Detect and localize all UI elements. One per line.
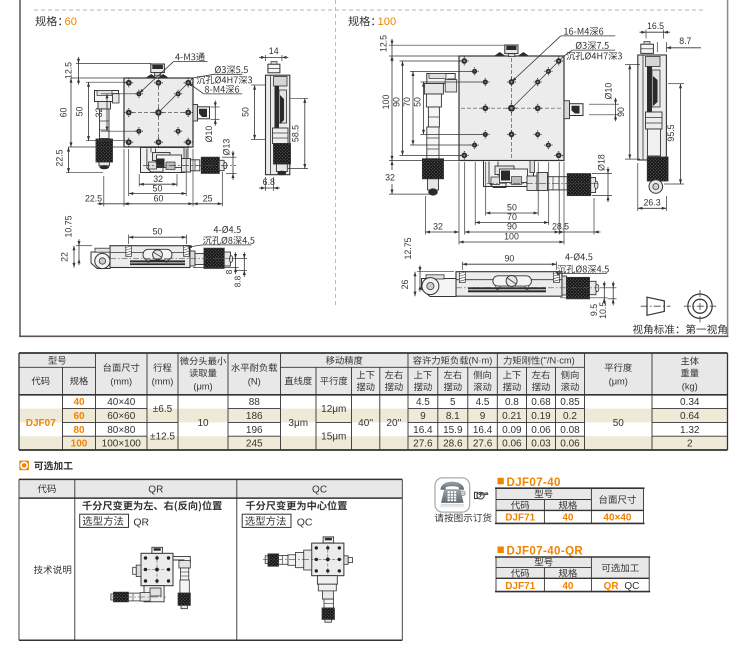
- svg-text:196: 196: [246, 425, 263, 436]
- svg-text:1.32: 1.32: [680, 425, 700, 436]
- svg-text:60: 60: [154, 194, 164, 204]
- svg-text:90: 90: [616, 107, 626, 117]
- svg-text:50: 50: [241, 107, 251, 117]
- svg-text:12.5: 12.5: [378, 35, 388, 52]
- svg-text:80×80: 80×80: [107, 425, 136, 436]
- svg-text:8: 8: [225, 269, 234, 274]
- svg-text:60×60: 60×60: [107, 411, 136, 422]
- svg-text:0.03: 0.03: [531, 439, 551, 450]
- svg-text:50: 50: [75, 107, 85, 117]
- svg-text:DJF71: DJF71: [505, 513, 535, 524]
- svg-text:100: 100: [71, 439, 88, 450]
- svg-text:32: 32: [153, 174, 163, 184]
- svg-text:16.5: 16.5: [647, 21, 664, 31]
- svg-text:5: 5: [450, 397, 456, 408]
- svg-text:50: 50: [613, 418, 625, 429]
- svg-text:20'': 20'': [386, 418, 401, 429]
- svg-text:88: 88: [249, 397, 261, 408]
- svg-text:14: 14: [269, 46, 279, 56]
- svg-text:90: 90: [505, 253, 515, 263]
- svg-text:27.6: 27.6: [413, 439, 433, 450]
- svg-text:32: 32: [433, 221, 443, 231]
- svg-text:0.8: 0.8: [505, 397, 519, 408]
- svg-text:(N·m): (N·m): [469, 356, 493, 366]
- svg-text:10.75: 10.75: [64, 215, 74, 237]
- svg-text:Ø13: Ø13: [221, 139, 231, 156]
- svg-text:28.5: 28.5: [552, 221, 569, 231]
- svg-text:(μm): (μm): [609, 376, 628, 386]
- svg-text:(''/N·cm): (''/N·cm): [540, 356, 575, 366]
- svg-text:100: 100: [504, 231, 519, 241]
- svg-text:Ø10: Ø10: [604, 83, 614, 100]
- svg-text:12μm: 12μm: [321, 404, 346, 415]
- svg-text:±6.5: ±6.5: [153, 404, 173, 415]
- svg-text:0.06: 0.06: [560, 439, 580, 450]
- svg-text:100: 100: [381, 95, 391, 110]
- svg-text:8.1: 8.1: [446, 411, 460, 422]
- svg-text:32: 32: [94, 108, 104, 118]
- svg-text:0.68: 0.68: [531, 397, 551, 408]
- svg-text:15.9: 15.9: [443, 425, 463, 436]
- svg-text:40: 40: [562, 581, 574, 592]
- svg-text:9: 9: [480, 411, 486, 422]
- svg-text:16.4: 16.4: [473, 425, 493, 436]
- svg-text:(kg): (kg): [682, 381, 698, 391]
- svg-text:DJF71: DJF71: [505, 581, 535, 592]
- svg-text:58.5: 58.5: [290, 125, 300, 142]
- svg-text:0.06: 0.06: [531, 425, 551, 436]
- svg-text:90: 90: [391, 97, 401, 107]
- svg-text:3μm: 3μm: [288, 418, 308, 429]
- svg-text:(μm): (μm): [193, 381, 212, 391]
- svg-text:DJF07-40-QR: DJF07-40-QR: [507, 546, 584, 558]
- svg-text:15μm: 15μm: [321, 432, 346, 443]
- svg-text:0.21: 0.21: [502, 411, 522, 422]
- svg-text:50: 50: [153, 226, 163, 236]
- svg-text:50: 50: [413, 97, 423, 107]
- svg-text:22.5: 22.5: [85, 194, 102, 204]
- svg-text:60: 60: [65, 16, 77, 28]
- svg-text:100: 100: [378, 16, 397, 28]
- svg-text:16.4: 16.4: [413, 425, 433, 436]
- svg-text:0.85: 0.85: [560, 397, 580, 408]
- svg-text:12.75: 12.75: [403, 237, 413, 259]
- svg-text:8.7: 8.7: [679, 36, 691, 46]
- svg-text:0.09: 0.09: [502, 425, 522, 436]
- svg-text:22.5: 22.5: [55, 149, 65, 166]
- svg-text:50: 50: [507, 202, 517, 212]
- svg-text:Ø10: Ø10: [204, 126, 214, 143]
- svg-text:4.5: 4.5: [476, 397, 490, 408]
- svg-text:QR: QR: [133, 517, 149, 529]
- svg-text:0.2: 0.2: [563, 411, 577, 422]
- svg-text:4.5: 4.5: [416, 397, 430, 408]
- svg-text:22: 22: [60, 252, 70, 262]
- svg-text:70: 70: [507, 212, 517, 222]
- svg-text:27.6: 27.6: [473, 439, 493, 450]
- svg-text:50: 50: [153, 183, 163, 193]
- svg-text:10.5: 10.5: [598, 302, 608, 319]
- svg-text:40: 40: [562, 513, 574, 524]
- svg-text:Ø18: Ø18: [596, 154, 606, 171]
- svg-text:245: 245: [246, 439, 263, 450]
- svg-text:QR: QR: [148, 484, 163, 495]
- svg-text:60: 60: [73, 411, 85, 422]
- svg-text:32: 32: [385, 172, 395, 182]
- svg-text:80: 80: [73, 425, 85, 436]
- svg-text:40'': 40'': [358, 418, 373, 429]
- svg-text:186: 186: [246, 411, 263, 422]
- svg-text:40: 40: [73, 397, 85, 408]
- svg-text:40×40: 40×40: [107, 397, 136, 408]
- svg-text:0.08: 0.08: [560, 425, 580, 436]
- svg-text:6.8: 6.8: [263, 177, 275, 187]
- svg-text:0.19: 0.19: [531, 411, 551, 422]
- svg-text:QR: QR: [604, 581, 620, 592]
- svg-text:9: 9: [420, 411, 426, 422]
- svg-text:100×100: 100×100: [102, 439, 142, 450]
- svg-text:0.34: 0.34: [680, 397, 700, 408]
- svg-text:90: 90: [507, 221, 517, 231]
- svg-text:(mm): (mm): [110, 376, 132, 386]
- svg-text:2: 2: [687, 439, 693, 450]
- svg-text:25: 25: [203, 194, 213, 204]
- svg-text:10: 10: [197, 418, 209, 429]
- svg-text:(N): (N): [248, 376, 261, 386]
- svg-text:28.6: 28.6: [443, 439, 463, 450]
- svg-text:40×40: 40×40: [603, 513, 632, 524]
- svg-text:QC: QC: [312, 484, 327, 495]
- svg-text:QC: QC: [624, 581, 639, 592]
- svg-text:8.8: 8.8: [234, 275, 243, 287]
- svg-text:DJF07: DJF07: [26, 418, 56, 429]
- svg-text:±12.5: ±12.5: [150, 432, 175, 443]
- svg-text:70: 70: [402, 97, 412, 107]
- svg-text:DJF07-40: DJF07-40: [507, 477, 561, 489]
- svg-text:60: 60: [59, 108, 69, 118]
- svg-text:12.5: 12.5: [64, 62, 74, 79]
- svg-text:95.5: 95.5: [666, 124, 676, 141]
- svg-text:0.06: 0.06: [502, 439, 522, 450]
- svg-text:(mm): (mm): [152, 376, 174, 386]
- svg-text:QC: QC: [297, 517, 313, 529]
- svg-text:26: 26: [400, 280, 410, 290]
- svg-text:26.3: 26.3: [644, 197, 661, 207]
- svg-text:0.64: 0.64: [680, 411, 700, 422]
